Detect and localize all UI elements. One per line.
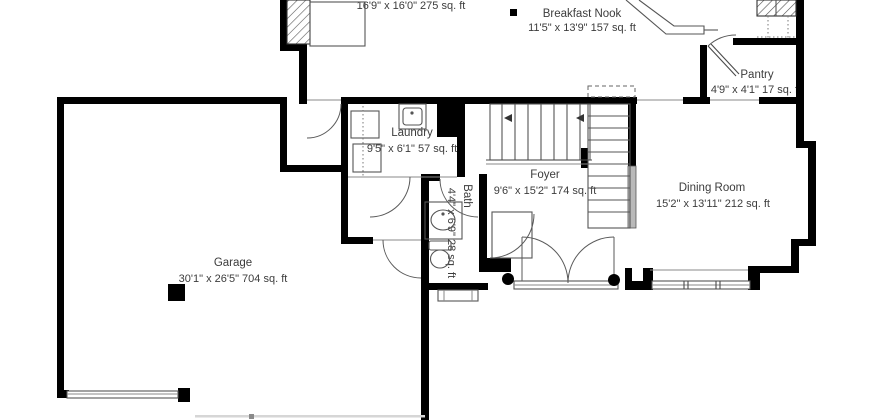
walls [57,0,816,420]
stair-upper-run [490,104,590,160]
dining-window [652,281,750,289]
stair-half-wall [628,166,636,228]
garage-entry-door-arc [383,240,421,278]
hall-bottom-wall [341,237,373,244]
vanity-faucet [441,212,444,215]
vestibule-left-wall [280,97,287,172]
garage-left-wall [57,97,64,397]
stair-treads-upper [502,104,580,160]
garage-dims: 30'1" x 26'5" 704 sq. ft [179,273,288,285]
stair-treads-lower [588,116,630,212]
garage-door-post [178,388,190,402]
pantry-door-leaf [708,46,736,76]
laundry-door-arc [370,177,410,217]
basement-stair-edge [626,0,704,34]
foyer-dims: 9'6" x 15'2" 174 sq. ft [494,185,597,197]
vestibule-door-arc [307,104,341,138]
family-room-left-wall [280,0,287,50]
utility-sink-basin [403,108,422,125]
porch-post [608,274,620,286]
fireplace [287,0,365,46]
sink-drain [410,111,413,114]
opening-jamb [759,97,764,104]
floor-plan-drawing: 16'9" x 16'0" 275 sq. ft Breakfast Nook … [0,0,870,420]
closet-door-arc [490,214,534,258]
laundry-fixtures [351,104,426,176]
garage-details [67,284,425,419]
fireplace-firebox [287,0,310,44]
front-entry [502,237,620,289]
porch-post [502,273,514,285]
laundry-dims: 9'5" x 6'1" 57 sq. ft [367,143,457,155]
stair-newel-wall [581,148,588,168]
floor-plan-page: 16'9" x 16'0" 275 sq. ft Breakfast Nook … [0,0,870,420]
front-door-arc-right [568,237,614,283]
chase-block [437,103,465,137]
staircase [486,86,635,228]
family-room-lower-wall [299,43,307,104]
dining-room-label: Dining Room [679,182,745,194]
closet-door-panel [492,212,532,258]
kitchen-details [626,0,796,38]
right-exterior-wall-upper [796,0,804,148]
pantry-label: Pantry [740,69,773,81]
stair-right-wall [628,104,636,166]
foyer-corner-block [479,258,511,272]
wall-stub [510,9,517,16]
dining-room-dims: 15'2" x 13'11" 212 sq. ft [656,198,770,210]
garage-door-2-edge [195,415,425,418]
stair-landing-dashed [588,86,635,97]
front-door-arc-left [522,237,568,283]
foyer-left-wall [479,174,487,266]
right-exterior-wall-bump [808,141,816,246]
bath-label: Bath [461,184,473,208]
main-top-wall [341,97,637,104]
garage-label: Garage [214,257,252,269]
bath-bottom-wall [421,283,488,290]
upper-room-dims: 16'9" x 16'0" 275 sq. ft [357,0,466,12]
opening-jamb [705,97,710,104]
pantry-left-wall [700,45,707,104]
breakfast-nook-dims: 11'5" x 13'9" 157 sq. ft [528,22,636,34]
laundry-left-wall [341,104,348,244]
pantry-door-arc [708,35,736,46]
laundry-right-wall [457,137,465,177]
pantry-door-leaf-2 [711,44,739,74]
stair-direction-arrow [504,114,512,122]
washer [351,111,379,138]
garage-top-wall [57,97,287,104]
porch-corner-notch [632,268,643,281]
vestibule-bottom-wall [280,165,348,172]
breakfast-nook-label: Breakfast Nook [543,8,622,20]
garage-door-jamb-mark [249,414,254,419]
stair-lower-run [588,104,630,228]
foyer-label: Foyer [530,169,560,181]
garage-post [168,284,185,301]
pantry-top-wall [733,38,796,45]
pantry-dims: 4'9" x 4'1" 17 sq. ft [711,84,801,96]
